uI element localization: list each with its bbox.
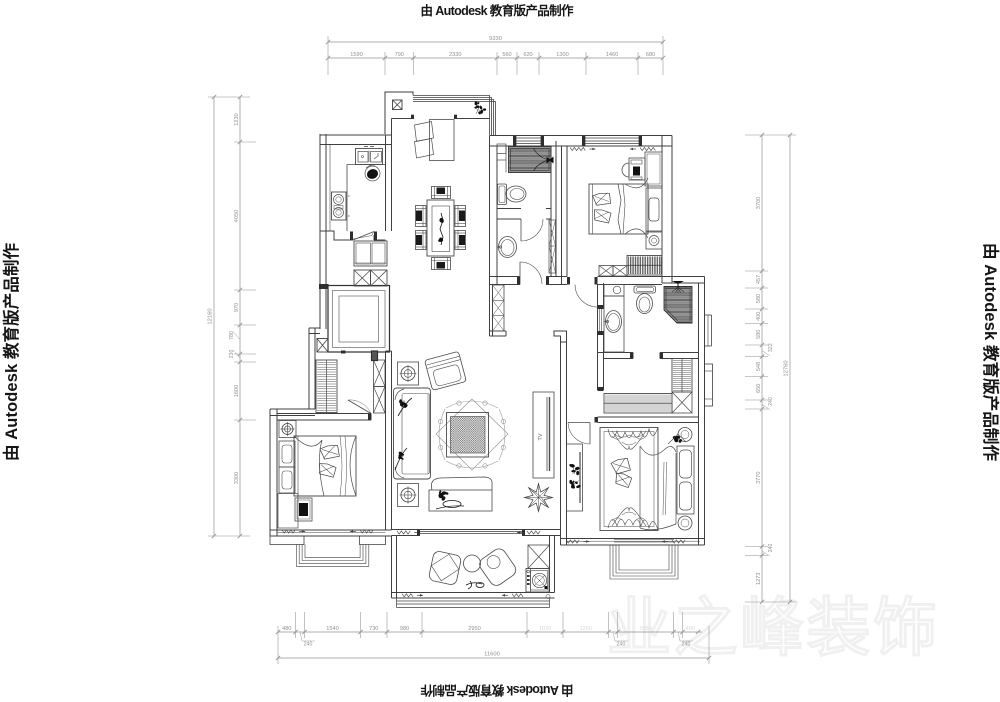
svg-text:650: 650 [756, 384, 762, 393]
svg-text:680: 680 [646, 52, 655, 58]
svg-text:1590: 1590 [350, 52, 362, 58]
svg-text:240: 240 [768, 397, 774, 406]
svg-text:580: 580 [756, 294, 762, 303]
svg-text:400: 400 [756, 312, 762, 321]
svg-text:580: 580 [756, 330, 762, 339]
svg-text:1020: 1020 [539, 626, 551, 632]
svg-text:1600: 1600 [234, 385, 240, 397]
svg-text:240: 240 [682, 642, 691, 648]
svg-text:4050: 4050 [234, 210, 240, 222]
svg-text:1250: 1250 [580, 626, 592, 632]
svg-text:TV: TV [538, 433, 544, 440]
svg-text:1540: 1540 [326, 626, 338, 632]
svg-text:1300: 1300 [556, 52, 568, 58]
svg-text:11600: 11600 [484, 652, 500, 658]
svg-text:322: 322 [768, 343, 774, 352]
svg-text:9330: 9330 [489, 36, 502, 42]
svg-text:由 Autodesk 教育版产品制作: 由 Autodesk 教育版产品制作 [981, 243, 1000, 462]
svg-text:780: 780 [229, 331, 235, 340]
svg-text:790: 790 [395, 52, 404, 58]
svg-text:1273: 1273 [756, 573, 762, 585]
svg-text:970: 970 [234, 303, 240, 312]
svg-text:由 Autodesk 教育版产品制作: 由 Autodesk 教育版产品制作 [420, 683, 573, 698]
svg-text:2950: 2950 [468, 626, 480, 632]
svg-text:业之峰装饰: 业之峰装饰 [607, 592, 937, 664]
svg-text:1460: 1460 [606, 52, 618, 58]
svg-text:由 Autodesk 教育版产品制作: 由 Autodesk 教育版产品制作 [1, 243, 21, 462]
svg-text:240: 240 [304, 642, 313, 648]
svg-text:230: 230 [229, 350, 235, 359]
svg-text:560: 560 [502, 52, 511, 58]
svg-text:730: 730 [369, 626, 378, 632]
svg-text:1550: 1550 [639, 626, 651, 632]
svg-text:12760: 12760 [784, 360, 790, 376]
svg-text:480: 480 [282, 626, 291, 632]
svg-text:12160: 12160 [208, 308, 214, 324]
svg-text:3300: 3300 [234, 472, 240, 484]
svg-text:由 Autodesk 教育版产品制作: 由 Autodesk 教育版产品制作 [421, 3, 574, 18]
svg-text:457: 457 [756, 275, 762, 284]
svg-text:980: 980 [400, 626, 409, 632]
svg-text:1230: 1230 [234, 113, 240, 125]
svg-text:548: 548 [756, 362, 762, 371]
svg-text:240: 240 [768, 544, 774, 553]
svg-text:3700: 3700 [756, 197, 762, 209]
svg-text:400: 400 [686, 626, 695, 632]
svg-text:3770: 3770 [756, 472, 762, 484]
svg-text:2330: 2330 [449, 52, 461, 58]
svg-text:240: 240 [617, 642, 626, 648]
svg-text:620: 620 [523, 52, 532, 58]
